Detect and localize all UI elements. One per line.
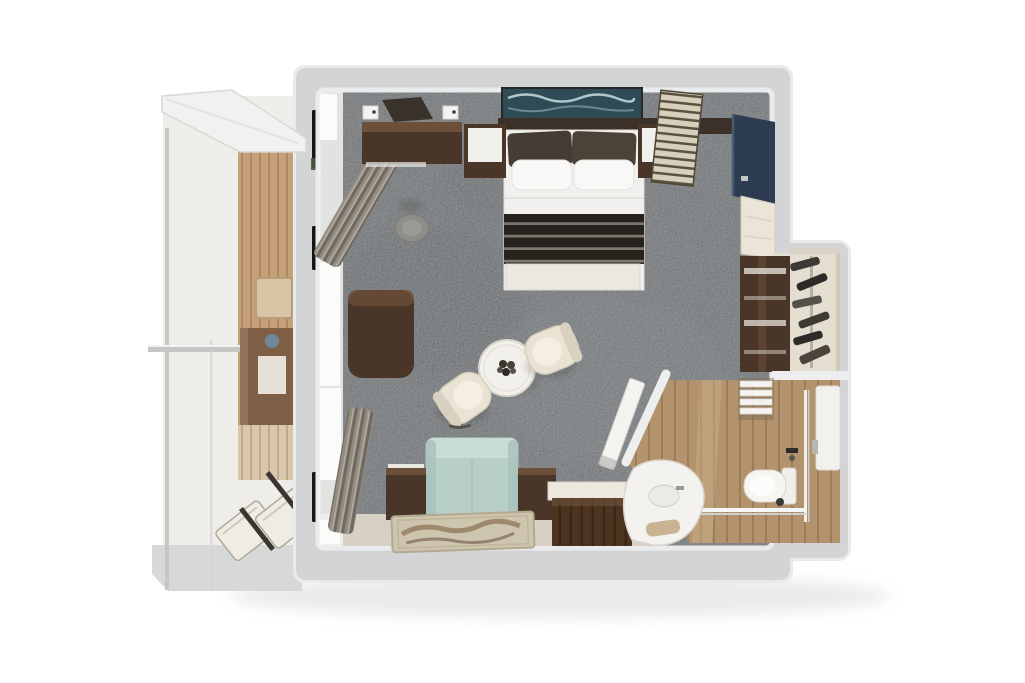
wall-light-right-dot [452, 110, 456, 114]
shower-track [692, 508, 806, 512]
closet-inner-shade [836, 253, 840, 371]
floorplan-stage [0, 0, 1025, 683]
area-rug [391, 511, 534, 552]
balcony-wood-wall-lower [238, 425, 302, 480]
foot-runner [504, 214, 644, 264]
shower-glass-v2 [808, 390, 810, 522]
ottoman-top [402, 220, 422, 236]
handrail-highlight [148, 345, 240, 347]
window-glow-3 [320, 388, 341, 480]
faucet [676, 486, 684, 490]
headboard-artwork [502, 88, 642, 122]
wall-light-left-dot [372, 110, 376, 114]
walk-in-closet [740, 248, 848, 380]
slatted-screen [651, 90, 702, 186]
door-reflection-lamp [258, 356, 286, 394]
white-pillow-left [512, 160, 572, 190]
ottoman-shadow [399, 200, 423, 212]
glass-divider [210, 340, 213, 590]
shower-panel [816, 386, 840, 470]
floorplan-render [0, 0, 1025, 683]
dresser-base-sliver [366, 162, 426, 167]
window-glow-1 [320, 94, 337, 140]
sink [649, 485, 679, 507]
shower-control [789, 455, 795, 461]
foot-bench [506, 264, 640, 290]
nightstand-left [464, 124, 506, 178]
wall-light-right [443, 106, 458, 119]
door-reflection-detail [265, 334, 279, 348]
bathroom [599, 374, 840, 545]
dresser-top-face [362, 122, 462, 132]
entry-door [741, 196, 775, 258]
white-pillow-right [574, 160, 634, 190]
deck-edge [152, 545, 302, 591]
wall-light-left [363, 106, 378, 119]
toilet [744, 468, 796, 506]
closet-bath-divider [772, 371, 848, 380]
door-glass-sheen [240, 328, 248, 425]
side-table-left [386, 464, 426, 520]
shower-bar [812, 440, 818, 454]
balcony-side-table [256, 278, 292, 318]
shower-track-shadow [692, 513, 806, 515]
glass-railing [165, 128, 169, 590]
tv-panel-speck [741, 176, 748, 181]
window-glow-2 [320, 262, 340, 386]
sofa [426, 438, 518, 522]
minibar-cabinet [548, 482, 632, 546]
mirror-wardrobe [740, 256, 790, 372]
shower-glass-v [804, 390, 807, 522]
closet-shelf [788, 248, 840, 254]
tv-panel [733, 114, 775, 204]
shower-fixture [786, 448, 798, 453]
desk-top-band [348, 290, 414, 306]
